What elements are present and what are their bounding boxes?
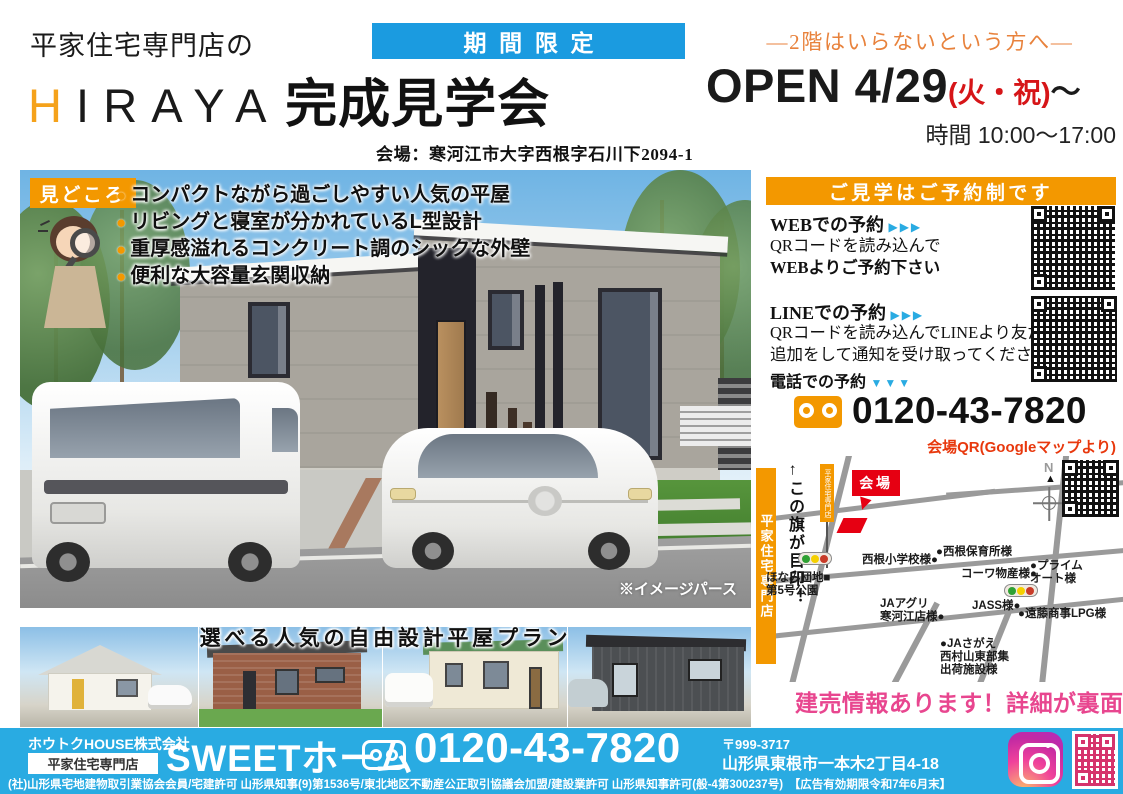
web-reservation-label: WEBでの予約 [770, 215, 884, 235]
access-map: 平家住宅専門店 ←この旗が目印！ 平家住宅専門店 会場 西根小学校様● ●西根保… [756, 456, 1123, 682]
open-date-main: OPEN 4/29 [706, 59, 948, 112]
brand-letter-h: H [28, 79, 76, 132]
tel-reservation-title: 電話での予約 ▼▼▼ [770, 368, 912, 392]
web-reservation-line2: WEBよりご予約下さい [770, 257, 940, 279]
audience-tagline: ―2階はいらないという方へ― [722, 26, 1118, 56]
web-reservation-qr-code [1031, 206, 1115, 290]
web-reservation-title: WEBでの予約 ▶▶▶ [770, 211, 922, 237]
footer-store-badge: 平家住宅専門店 [28, 753, 158, 774]
plans-heading: 選べる人気の自由設計平屋プラン [20, 622, 751, 652]
window [488, 290, 524, 350]
venue-address: 会場：寒河江市大字西根字石川下2094-1 [376, 140, 693, 165]
compass-arrow-icon: ▲ [1045, 473, 1056, 485]
instagram-icon [1008, 732, 1063, 787]
triple-right-arrow-icon: ▶▶▶ [888, 220, 922, 234]
bullet-icon: ● [116, 213, 126, 232]
footer-bar: ホウトクHOUSE株式会社 平家住宅専門店 SWEETホーム 0120-43-7… [0, 728, 1123, 794]
promo-line: 建売情報あります！詳細が裏面へ ➡ [795, 684, 1123, 720]
reservation-phone-number: 0120-43-7820 [852, 390, 1087, 432]
highlight-item: 便利な大容量玄関収納 [130, 265, 330, 287]
map-landmark: コーワ物産様● [961, 568, 1037, 581]
venue-marker-badge: 会場 [852, 470, 900, 496]
map-qr-caption: 会場QR(Googleマップより) [860, 436, 1116, 457]
compass-icon [1042, 496, 1056, 510]
flyer-page: 平家住宅専門店の HIRAYA 完成見学会 期間限定 会場：寒河江市大字西根字石… [0, 0, 1123, 794]
web-reservation-line1: QRコードを読み込んで [770, 235, 941, 257]
venue-site-mark [837, 518, 868, 533]
map-qr-code [1062, 460, 1119, 517]
shop-tagline: 平家住宅専門店の [30, 24, 254, 63]
line-reservation-qr-code [1031, 296, 1117, 382]
vertical-store-banner: 平家住宅専門店 [756, 468, 776, 664]
map-landmark: 西根小学校様● [862, 554, 938, 567]
line-reservation-line1: QRコードを読み込んでLINEより友だち [770, 322, 1060, 344]
freedial-phone-icon [794, 396, 842, 428]
footer-qr-code [1072, 731, 1118, 789]
bullet-icon: ● [116, 240, 126, 259]
footer-phone-icon [362, 740, 406, 770]
window [248, 302, 290, 378]
reservation-header: ご見学はご予約制です [766, 177, 1116, 205]
highlights-list: ●コンパクトながら過ごしやすい人気の平屋 ●リビングと寝室が分かれているL型設計… [116, 182, 530, 290]
map-landmark: JASS様● [972, 600, 1021, 613]
open-hours: 時間 10:00〜17:00 [706, 116, 1116, 150]
front-door [436, 320, 466, 445]
footer-phone-number: 0120-43-7820 [414, 724, 681, 772]
map-landmark: ●JAさがえ 西村山東部集 出荷施設様 [940, 638, 1009, 677]
store-flag: 平家住宅専門店 [820, 464, 834, 522]
open-date-weekday: (火・祝) [948, 77, 1051, 108]
event-title: 完成見学会 [285, 77, 550, 134]
bullet-icon: ● [116, 186, 126, 205]
open-date-tilde: 〜 [1051, 76, 1081, 109]
footer-address: 山形県東根市一本木2丁目4-18 [722, 750, 939, 774]
triple-down-arrow-icon: ▼▼▼ [870, 376, 912, 390]
bullet-icon: ● [116, 267, 126, 286]
limited-time-badge: 期間限定 [372, 23, 685, 59]
house-render-image: 見どころ ●コンパクトながら過ごしやすい人気の平屋 ●リビングと寝室が分かれてい… [20, 170, 751, 608]
light-fence [680, 406, 751, 446]
map-landmark: ●プライム オート様 [1030, 560, 1083, 586]
line-reservation-line2: 追加をして通知を受け取ってください [770, 344, 1049, 366]
map-landmark: JAアグリ 寒河江店様● [880, 598, 944, 624]
brand-letters-rest: IRAYA [76, 79, 281, 132]
highlight-item: コンパクトながら過ごしやすい人気の平屋 [130, 184, 510, 206]
map-landmark: ほなみ団地■ 第5号公園 [766, 572, 830, 598]
line-reservation-label: LINEでの予約 [770, 303, 886, 323]
traffic-light-icon [798, 552, 832, 565]
triple-right-arrow-icon: ▶▶▶ [890, 308, 924, 322]
map-landmark: ●遠藤商事LPG様 [1018, 608, 1106, 621]
open-date: OPEN 4/29(火・祝)〜 [706, 58, 1120, 113]
footer-legal-text: (社)山形県宅地建物取引業協会会員/宅建許可 山形県知事(9)第1536号/東北… [8, 776, 1058, 792]
map-landmark: ●西根保育所様 [936, 546, 1012, 559]
highlight-item: 重厚感溢れるコンクリート調のシックな外壁 [130, 238, 530, 260]
highlight-item: リビングと寝室が分かれているL型設計 [130, 211, 482, 233]
image-disclaimer: ※イメージパース [619, 578, 737, 599]
promo-text: 建売情報あります！詳細が裏面へ [795, 690, 1123, 716]
tel-reservation-label: 電話での予約 [770, 374, 866, 391]
brand-title: HIRAYA 完成見学会 [28, 62, 550, 137]
